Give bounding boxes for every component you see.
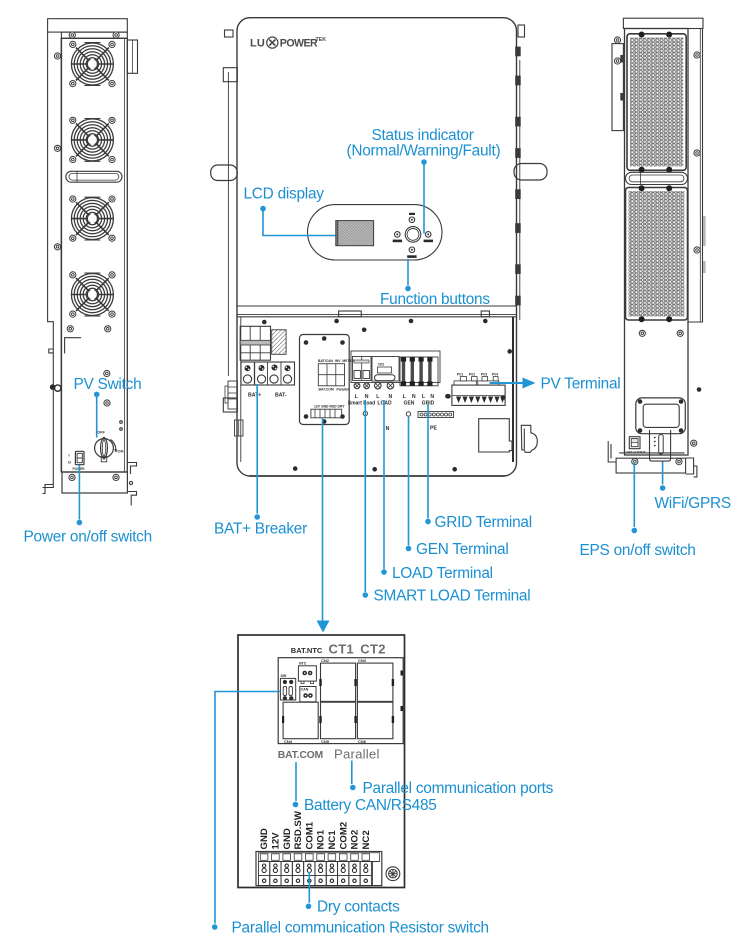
svg-text:NC1: NC1 <box>327 830 338 850</box>
svg-text:BAT/CAN INV METER: BAT/CAN INV METER <box>318 359 355 363</box>
svg-text:GEN: GEN <box>404 401 415 407</box>
svg-text:TEK: TEK <box>316 37 327 43</box>
svg-text:N: N <box>412 394 416 400</box>
svg-text:SW: SW <box>281 674 287 678</box>
svg-text:PV Terminal: PV Terminal <box>541 376 621 393</box>
svg-text:GND: GND <box>282 828 293 849</box>
svg-text:BAT-: BAT- <box>275 393 287 399</box>
svg-text:PV Switch: PV Switch <box>74 376 142 393</box>
svg-text:Power on/off switch: Power on/off switch <box>24 529 152 546</box>
svg-text:LCD display: LCD display <box>244 186 325 203</box>
svg-text:SMART LOAD Terminal: SMART LOAD Terminal <box>374 588 531 605</box>
svg-text:BAT+: BAT+ <box>248 393 261 399</box>
svg-text:CN3: CN3 <box>358 658 367 663</box>
svg-text:Battery CAN/RS485: Battery CAN/RS485 <box>304 797 437 814</box>
svg-text:GEN Terminal: GEN Terminal <box>416 541 509 558</box>
svg-text:N: N <box>389 394 393 400</box>
svg-text:N: N <box>430 394 434 400</box>
svg-text:O: O <box>68 460 71 465</box>
svg-text:CN5: CN5 <box>321 739 330 744</box>
svg-text:GRID Terminal: GRID Terminal <box>435 514 532 531</box>
svg-text:CN4: CN4 <box>284 739 293 744</box>
svg-text:CN2: CN2 <box>321 658 330 663</box>
svg-text:NTC: NTC <box>299 662 307 666</box>
svg-text:BAT+ Breaker: BAT+ Breaker <box>214 521 307 538</box>
svg-text:NO1: NO1 <box>316 829 327 849</box>
svg-text:N: N <box>365 394 369 400</box>
svg-text:LU: LU <box>250 38 265 50</box>
svg-text:(Normal/Warning/Fault): (Normal/Warning/Fault) <box>347 143 501 160</box>
svg-text:OFF: OFF <box>97 430 106 435</box>
svg-text:GND: GND <box>259 828 270 849</box>
svg-text:12V: 12V <box>271 832 282 850</box>
svg-text:CT1: CT1 <box>329 642 354 657</box>
svg-text:RSD.SW: RSD.SW <box>293 810 304 849</box>
svg-text:COM2: COM2 <box>338 822 349 850</box>
svg-text:CT2: CT2 <box>360 642 385 657</box>
svg-text:PV3: PV3 <box>481 373 488 377</box>
svg-text:NO2: NO2 <box>350 830 361 850</box>
svg-text:COM1: COM1 <box>304 821 315 849</box>
svg-text:I: I <box>69 453 70 458</box>
svg-text:BAT.COM Parallel: BAT.COM Parallel <box>319 388 349 392</box>
svg-text:CAN: CAN <box>301 688 309 692</box>
svg-text:BAT.NTC: BAT.NTC <box>291 646 323 655</box>
svg-text:LOAD Terminal: LOAD Terminal <box>392 565 493 582</box>
svg-text:Function buttons: Function buttons <box>380 291 490 308</box>
svg-text:12V GND RSD DRY: 12V GND RSD DRY <box>314 405 345 409</box>
svg-text:Parallel communication ports: Parallel communication ports <box>363 780 554 797</box>
svg-text:PV4: PV4 <box>492 373 499 377</box>
svg-text:WiFi/GPRS: WiFi/GPRS <box>655 495 731 512</box>
svg-text:Dry contacts: Dry contacts <box>317 899 400 916</box>
svg-text:PE: PE <box>430 426 437 432</box>
svg-text:PV1: PV1 <box>457 373 464 377</box>
svg-text:Smart Load: Smart Load <box>348 401 376 407</box>
svg-text:ON: ON <box>118 449 124 454</box>
svg-text:PV2: PV2 <box>469 373 476 377</box>
svg-text:N: N <box>386 426 390 432</box>
svg-text:BAT.COM: BAT.COM <box>278 750 323 761</box>
svg-text:Parallel: Parallel <box>334 747 380 762</box>
svg-text:Status indicator: Status indicator <box>372 127 474 144</box>
svg-text:C63: C63 <box>378 363 384 367</box>
svg-text:EPS on/off switch: EPS on/off switch <box>580 542 696 559</box>
svg-text:NC2: NC2 <box>361 830 372 849</box>
svg-text:POWER: POWER <box>280 38 318 50</box>
svg-text:CN6: CN6 <box>358 739 367 744</box>
svg-text:Parallel communication Resisto: Parallel communication Resistor switch <box>232 920 489 937</box>
